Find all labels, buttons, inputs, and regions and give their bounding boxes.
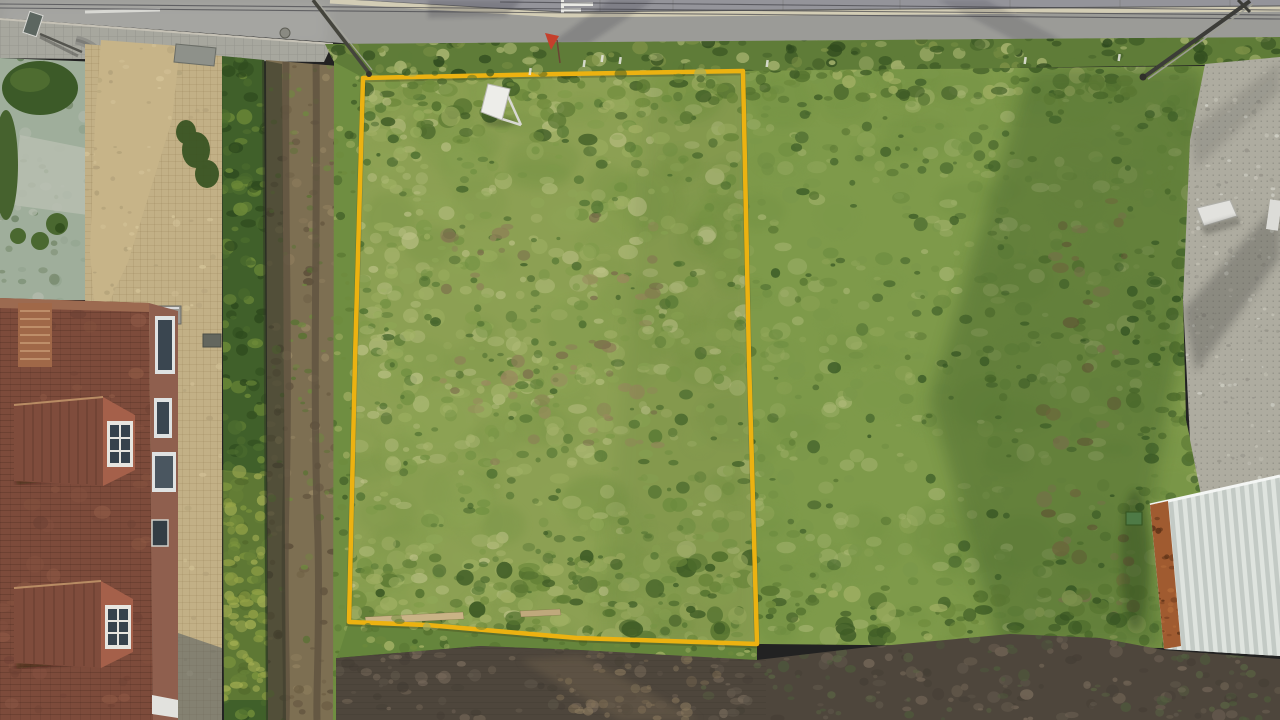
- roof-ridge-tiles: [18, 303, 52, 367]
- house-facade: [149, 303, 178, 720]
- bin: [203, 334, 221, 347]
- paver-driveway: [1182, 57, 1280, 500]
- hedge-shadow: [262, 60, 286, 720]
- road-marking: [85, 10, 160, 12]
- hedge-sunlit: [222, 470, 266, 700]
- dormer-window: [105, 605, 131, 649]
- tall-hedge: [215, 55, 286, 720]
- plot-grass: [319, 52, 780, 662]
- garden-hedge-highlight: [10, 68, 50, 92]
- house: [0, 298, 181, 720]
- green-box: [1126, 512, 1142, 525]
- dormer-upper: [14, 397, 135, 486]
- dormer-lower: [14, 581, 133, 668]
- dormer-window: [107, 421, 133, 467]
- aerial-photo: [0, 0, 1280, 720]
- aerial-photo-canvas: [0, 0, 1280, 720]
- manhole-cover: [280, 28, 290, 38]
- small-shed-roof: [174, 44, 216, 66]
- barn-shadow: [1121, 490, 1149, 630]
